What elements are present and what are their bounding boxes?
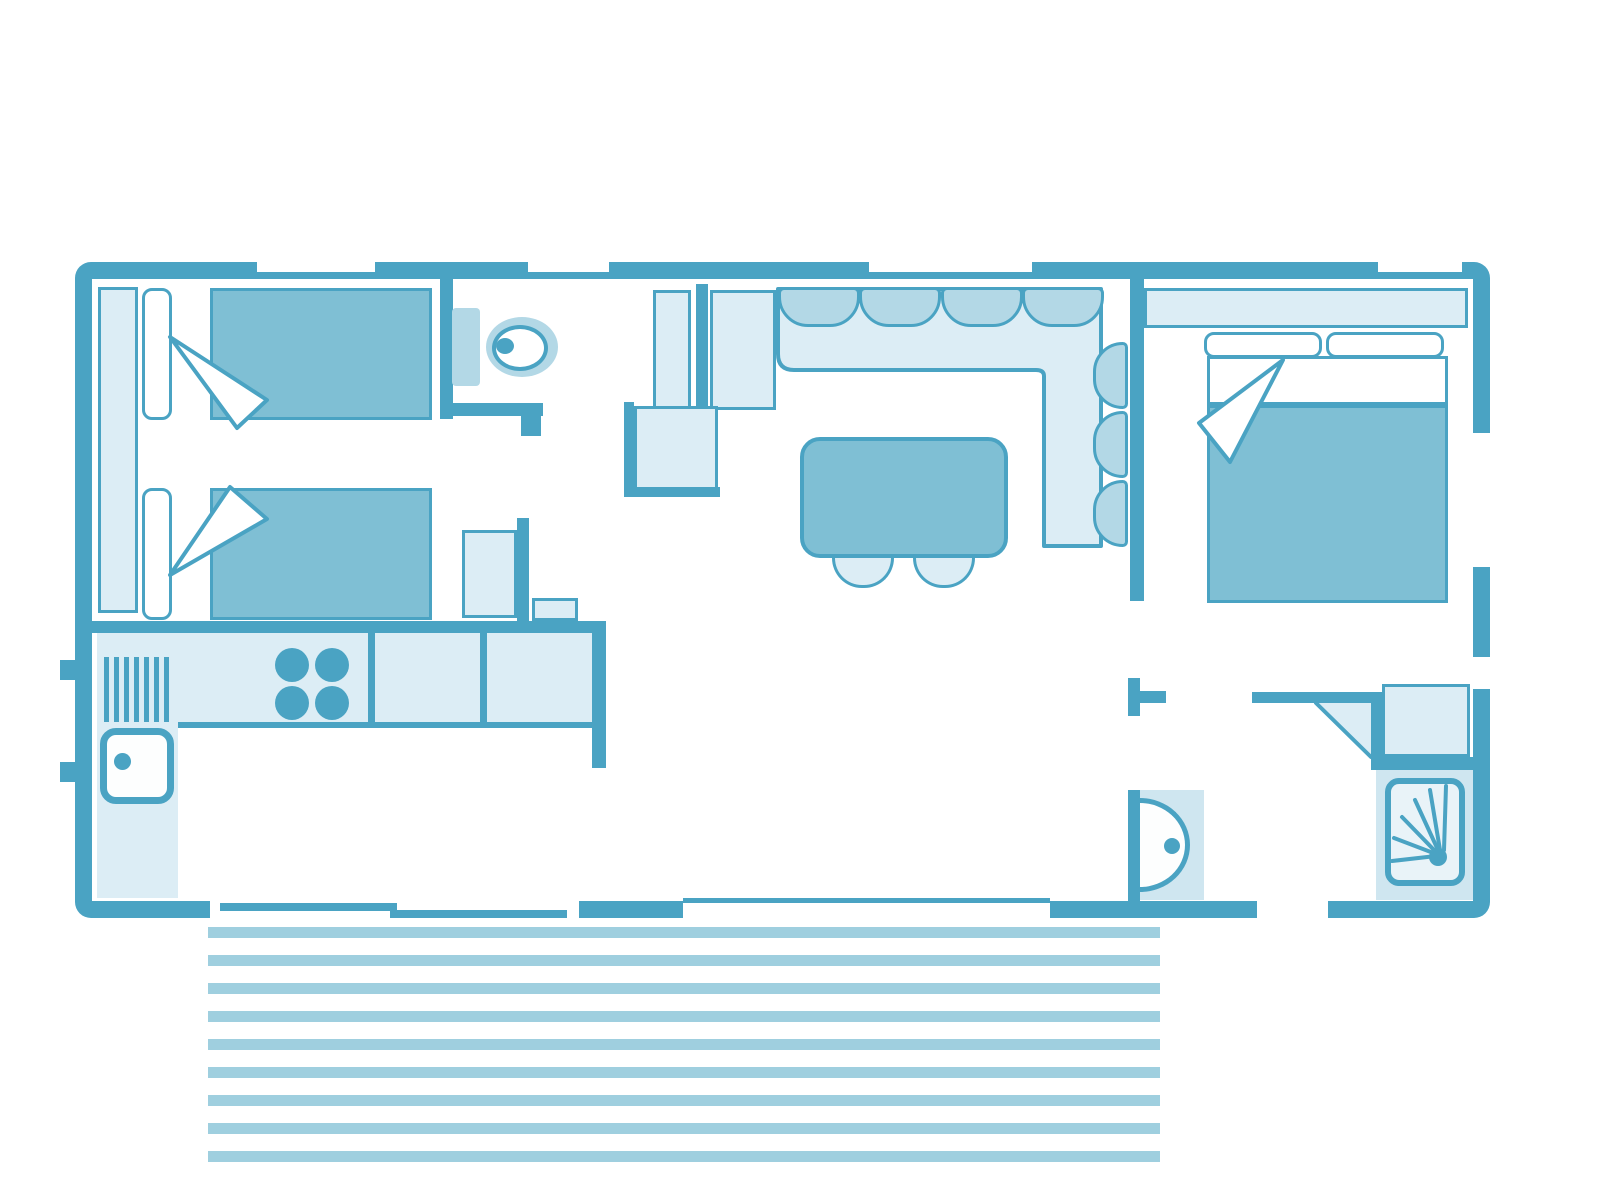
drainer-slot bbox=[134, 657, 139, 722]
deck-board bbox=[208, 1039, 1160, 1050]
corridor-wall bbox=[517, 518, 529, 630]
master-pillow-2 bbox=[1326, 332, 1444, 358]
hall-cabinet bbox=[532, 598, 578, 621]
washbasin-drain-dot bbox=[1164, 838, 1180, 854]
hob-burner-icon bbox=[275, 648, 309, 682]
deck-board bbox=[208, 1011, 1160, 1022]
entry-cabinet-1 bbox=[653, 290, 691, 414]
window-right-2 bbox=[1473, 657, 1490, 689]
master-bedroom-wall bbox=[1130, 279, 1144, 601]
entry-wall-stub bbox=[696, 284, 708, 415]
drainer-slot bbox=[154, 657, 159, 722]
sofa-cushion bbox=[1093, 480, 1128, 547]
sofa-cushion bbox=[1093, 411, 1128, 478]
wc-wall-stub bbox=[521, 416, 541, 436]
sofa-side-cushions bbox=[1093, 342, 1128, 548]
wc-cabinet bbox=[462, 530, 517, 618]
hob-burner-icon bbox=[275, 686, 309, 720]
worktop-divider-1 bbox=[368, 633, 375, 728]
bathroom-closet bbox=[1382, 684, 1470, 757]
window-top-3 bbox=[869, 262, 1032, 272]
bed2-mattress bbox=[210, 488, 432, 620]
deck-board bbox=[208, 1123, 1160, 1134]
deck-board bbox=[208, 1151, 1160, 1162]
shower-tray bbox=[1385, 778, 1465, 886]
bed2-pillow bbox=[142, 488, 172, 620]
terrace-deck bbox=[208, 927, 1160, 1172]
deck-board bbox=[208, 927, 1160, 938]
kitchen-top-wall bbox=[88, 621, 606, 633]
bottom-window-opening bbox=[1257, 901, 1328, 918]
drainer-slot bbox=[114, 657, 119, 722]
entry-cabinet-2 bbox=[710, 290, 776, 410]
bed1-mattress bbox=[210, 288, 432, 420]
hob bbox=[275, 648, 349, 720]
dining-table bbox=[800, 437, 1008, 558]
deck-board bbox=[208, 1067, 1160, 1078]
hall-door-jamb-v bbox=[1128, 678, 1140, 716]
hob-burner-icon bbox=[315, 686, 349, 720]
master-duvet bbox=[1207, 405, 1448, 603]
deck-board bbox=[208, 983, 1160, 994]
low-cabinet-wall-bottom bbox=[624, 487, 720, 497]
sofa-cushion bbox=[778, 287, 860, 327]
sliding-door-panel-2 bbox=[390, 910, 567, 918]
toilet-flush-dot bbox=[496, 338, 514, 354]
deck-board bbox=[208, 1095, 1160, 1106]
sink-drain-dot bbox=[114, 753, 131, 770]
drainer-slot bbox=[124, 657, 129, 722]
wc-bottom-wall bbox=[450, 403, 543, 416]
bathroom-door-wall bbox=[1252, 692, 1373, 703]
sofa-back-cushions bbox=[778, 287, 1104, 327]
headboard-shelf bbox=[1144, 288, 1468, 328]
window-right-1 bbox=[1473, 433, 1490, 567]
left-wall-tab-1 bbox=[60, 660, 76, 680]
sofa-cushion bbox=[1093, 342, 1128, 409]
hob-burner-icon bbox=[315, 648, 349, 682]
window-top-4 bbox=[1378, 262, 1462, 272]
drainer-slot bbox=[144, 657, 149, 722]
master-sheet bbox=[1207, 356, 1448, 405]
basin-wall bbox=[1128, 790, 1140, 901]
deck-board bbox=[208, 955, 1160, 966]
low-cabinet-wall-left bbox=[624, 402, 634, 496]
kitchen-right-wall bbox=[592, 621, 606, 768]
closet-bottom-wall bbox=[1371, 757, 1473, 770]
low-cabinet bbox=[634, 406, 718, 490]
sliding-door-panel-1 bbox=[220, 903, 397, 911]
worktop-divider-2 bbox=[480, 633, 487, 728]
wardrobe bbox=[98, 287, 138, 613]
master-pillow-1 bbox=[1204, 332, 1322, 358]
sofa-cushion bbox=[1022, 287, 1104, 327]
left-wall-tab-2 bbox=[60, 762, 76, 782]
drainer bbox=[104, 657, 174, 722]
hall-door-jamb-h bbox=[1140, 691, 1166, 703]
window-top-1 bbox=[257, 262, 375, 272]
drainer-slot bbox=[164, 657, 169, 722]
bed1-pillow bbox=[142, 288, 172, 420]
window-top-2 bbox=[528, 262, 609, 272]
bay-window-opening bbox=[683, 901, 1050, 918]
toilet-cistern bbox=[452, 308, 480, 386]
floor-plan bbox=[0, 0, 1600, 1200]
bay-window-glass bbox=[683, 898, 1050, 903]
sink bbox=[100, 728, 174, 804]
sofa-cushion bbox=[859, 287, 941, 327]
drainer-slot bbox=[104, 657, 109, 722]
sofa-cushion bbox=[941, 287, 1023, 327]
